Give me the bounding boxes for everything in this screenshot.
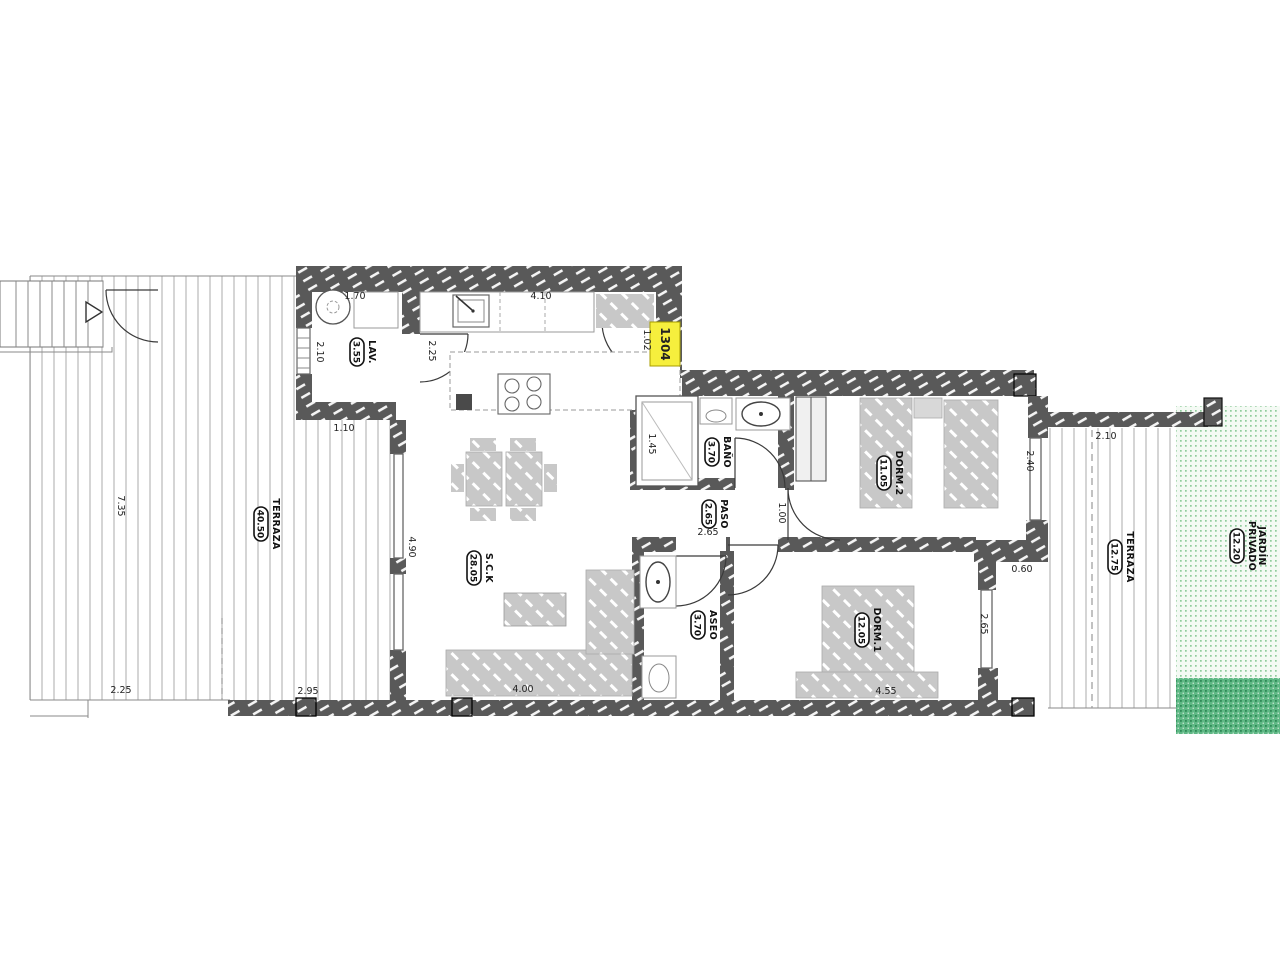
private-garden [1176, 406, 1280, 734]
dimension-label: 4.55 [875, 686, 896, 697]
unit-number: 1304 [658, 327, 672, 360]
aseo-fixtures [640, 556, 676, 698]
dimension-label: 4.10 [530, 291, 551, 302]
kitchen-counter [420, 292, 594, 332]
dimension-label: 2.25 [426, 340, 437, 361]
dimension-label: 1.00 [776, 502, 787, 523]
dining-set [451, 438, 557, 521]
dimension-label: 1.70 [344, 291, 365, 302]
dimension-label: 7.35 [115, 495, 126, 516]
dimension-label: 2.65 [978, 613, 989, 634]
svg-text:TERRAZA: TERRAZA [1124, 531, 1135, 583]
sck-window [394, 454, 403, 650]
dimension-label: 2.65 [697, 527, 718, 538]
entry-cabinet [596, 294, 654, 328]
sofa-set [446, 570, 634, 696]
dimension-label: 1.02 [641, 329, 652, 350]
floor-plan-page: 1304 LAV. 3.55 S.C.K 28.05 BAÑO 3.70 PAS… [0, 0, 1280, 960]
bed-headboard [796, 672, 938, 698]
nightstand [914, 398, 942, 418]
svg-text:28.05: 28.05 [468, 554, 478, 582]
room-label-banio: BAÑO 3.70 [705, 436, 732, 468]
dimension-label: 0.60 [1011, 564, 1032, 575]
banio-door [735, 438, 785, 488]
room-label-jardin: JARDÍN PRIVADO 12.20 [1230, 521, 1268, 571]
svg-text:BAÑO: BAÑO [721, 436, 732, 468]
dimension-label: 2.10 [1095, 431, 1116, 442]
dimension-label: 2.10 [314, 341, 325, 362]
svg-text:3.70: 3.70 [706, 441, 716, 463]
room-label-paso: PASO 2.65 [702, 499, 729, 529]
svg-text:PASO: PASO [718, 499, 729, 529]
room-label-sck: S.C.K 28.05 [467, 551, 494, 585]
svg-text:ASEO: ASEO [707, 610, 718, 640]
dimension-label: 4.90 [406, 536, 417, 557]
cooktop [498, 374, 550, 414]
room-label-aseo: ASEO 3.70 [691, 610, 718, 640]
room-label-lav: LAV. 3.55 [350, 338, 377, 366]
dimension-label: 2.25 [110, 685, 131, 696]
svg-text:DORM.2: DORM.2 [893, 451, 904, 496]
svg-text:12.20: 12.20 [1231, 532, 1241, 560]
svg-text:S.C.K: S.C.K [483, 553, 494, 583]
dimension-label: 2.40 [1024, 450, 1035, 471]
lav-window [297, 328, 310, 374]
unit-number-tag: 1304 [650, 322, 680, 366]
dorm1-door [728, 545, 778, 595]
aseo-door [676, 556, 726, 606]
dimension-label: 2.95 [297, 686, 318, 697]
kitchen-appliance [456, 394, 472, 410]
shower [636, 396, 698, 486]
svg-text:3.70: 3.70 [692, 614, 702, 636]
svg-text:LAV.: LAV. [366, 340, 377, 364]
coffee-table [504, 593, 566, 626]
svg-text:PRIVADO: PRIVADO [1246, 521, 1257, 571]
dimension-label: 1.10 [333, 423, 354, 434]
svg-text:11.05: 11.05 [878, 459, 888, 487]
dorm2-door [788, 488, 840, 540]
kitchen-sink [453, 295, 489, 327]
svg-text:DORM.1: DORM.1 [871, 608, 882, 653]
floor-plan: 1304 LAV. 3.55 S.C.K 28.05 BAÑO 3.70 PAS… [0, 0, 1280, 960]
svg-text:40.50: 40.50 [255, 510, 265, 538]
bed [944, 400, 998, 508]
svg-text:3.55: 3.55 [351, 341, 361, 363]
dimension-label: 4.00 [512, 684, 533, 695]
svg-text:12.05: 12.05 [856, 616, 866, 644]
svg-text:2.65: 2.65 [703, 503, 713, 525]
svg-text:TERRAZA: TERRAZA [270, 498, 281, 550]
dimension-label: 1.45 [646, 433, 657, 454]
svg-text:12.75: 12.75 [1109, 543, 1119, 571]
